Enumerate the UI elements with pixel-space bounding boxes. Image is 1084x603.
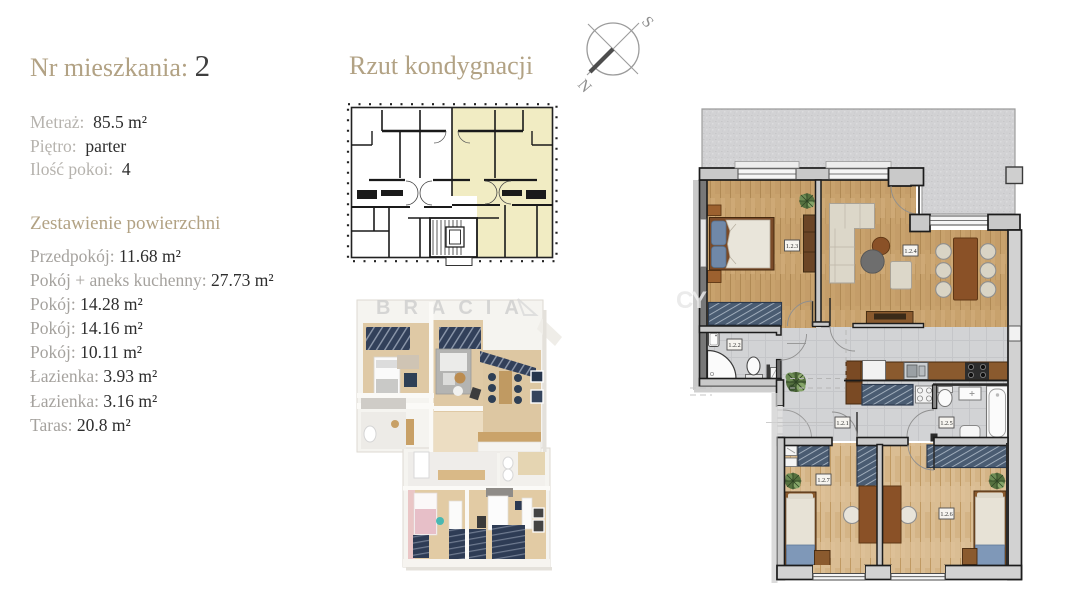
svg-text:1.2.6: 1.2.6 bbox=[940, 511, 952, 518]
svg-text:1.2.1: 1.2.1 bbox=[836, 420, 848, 427]
svg-text:1.2.2: 1.2.2 bbox=[728, 342, 740, 349]
svg-text:1.2.7: 1.2.7 bbox=[817, 477, 829, 484]
svg-text:N: N bbox=[574, 76, 595, 96]
svg-text:1.2.4: 1.2.4 bbox=[904, 248, 916, 255]
svg-text:1.2.3: 1.2.3 bbox=[786, 243, 798, 250]
svg-text:BRACIA: BRACIA bbox=[376, 297, 532, 319]
svg-text:S: S bbox=[638, 13, 657, 31]
svg-text:1.2.5: 1.2.5 bbox=[940, 420, 952, 427]
